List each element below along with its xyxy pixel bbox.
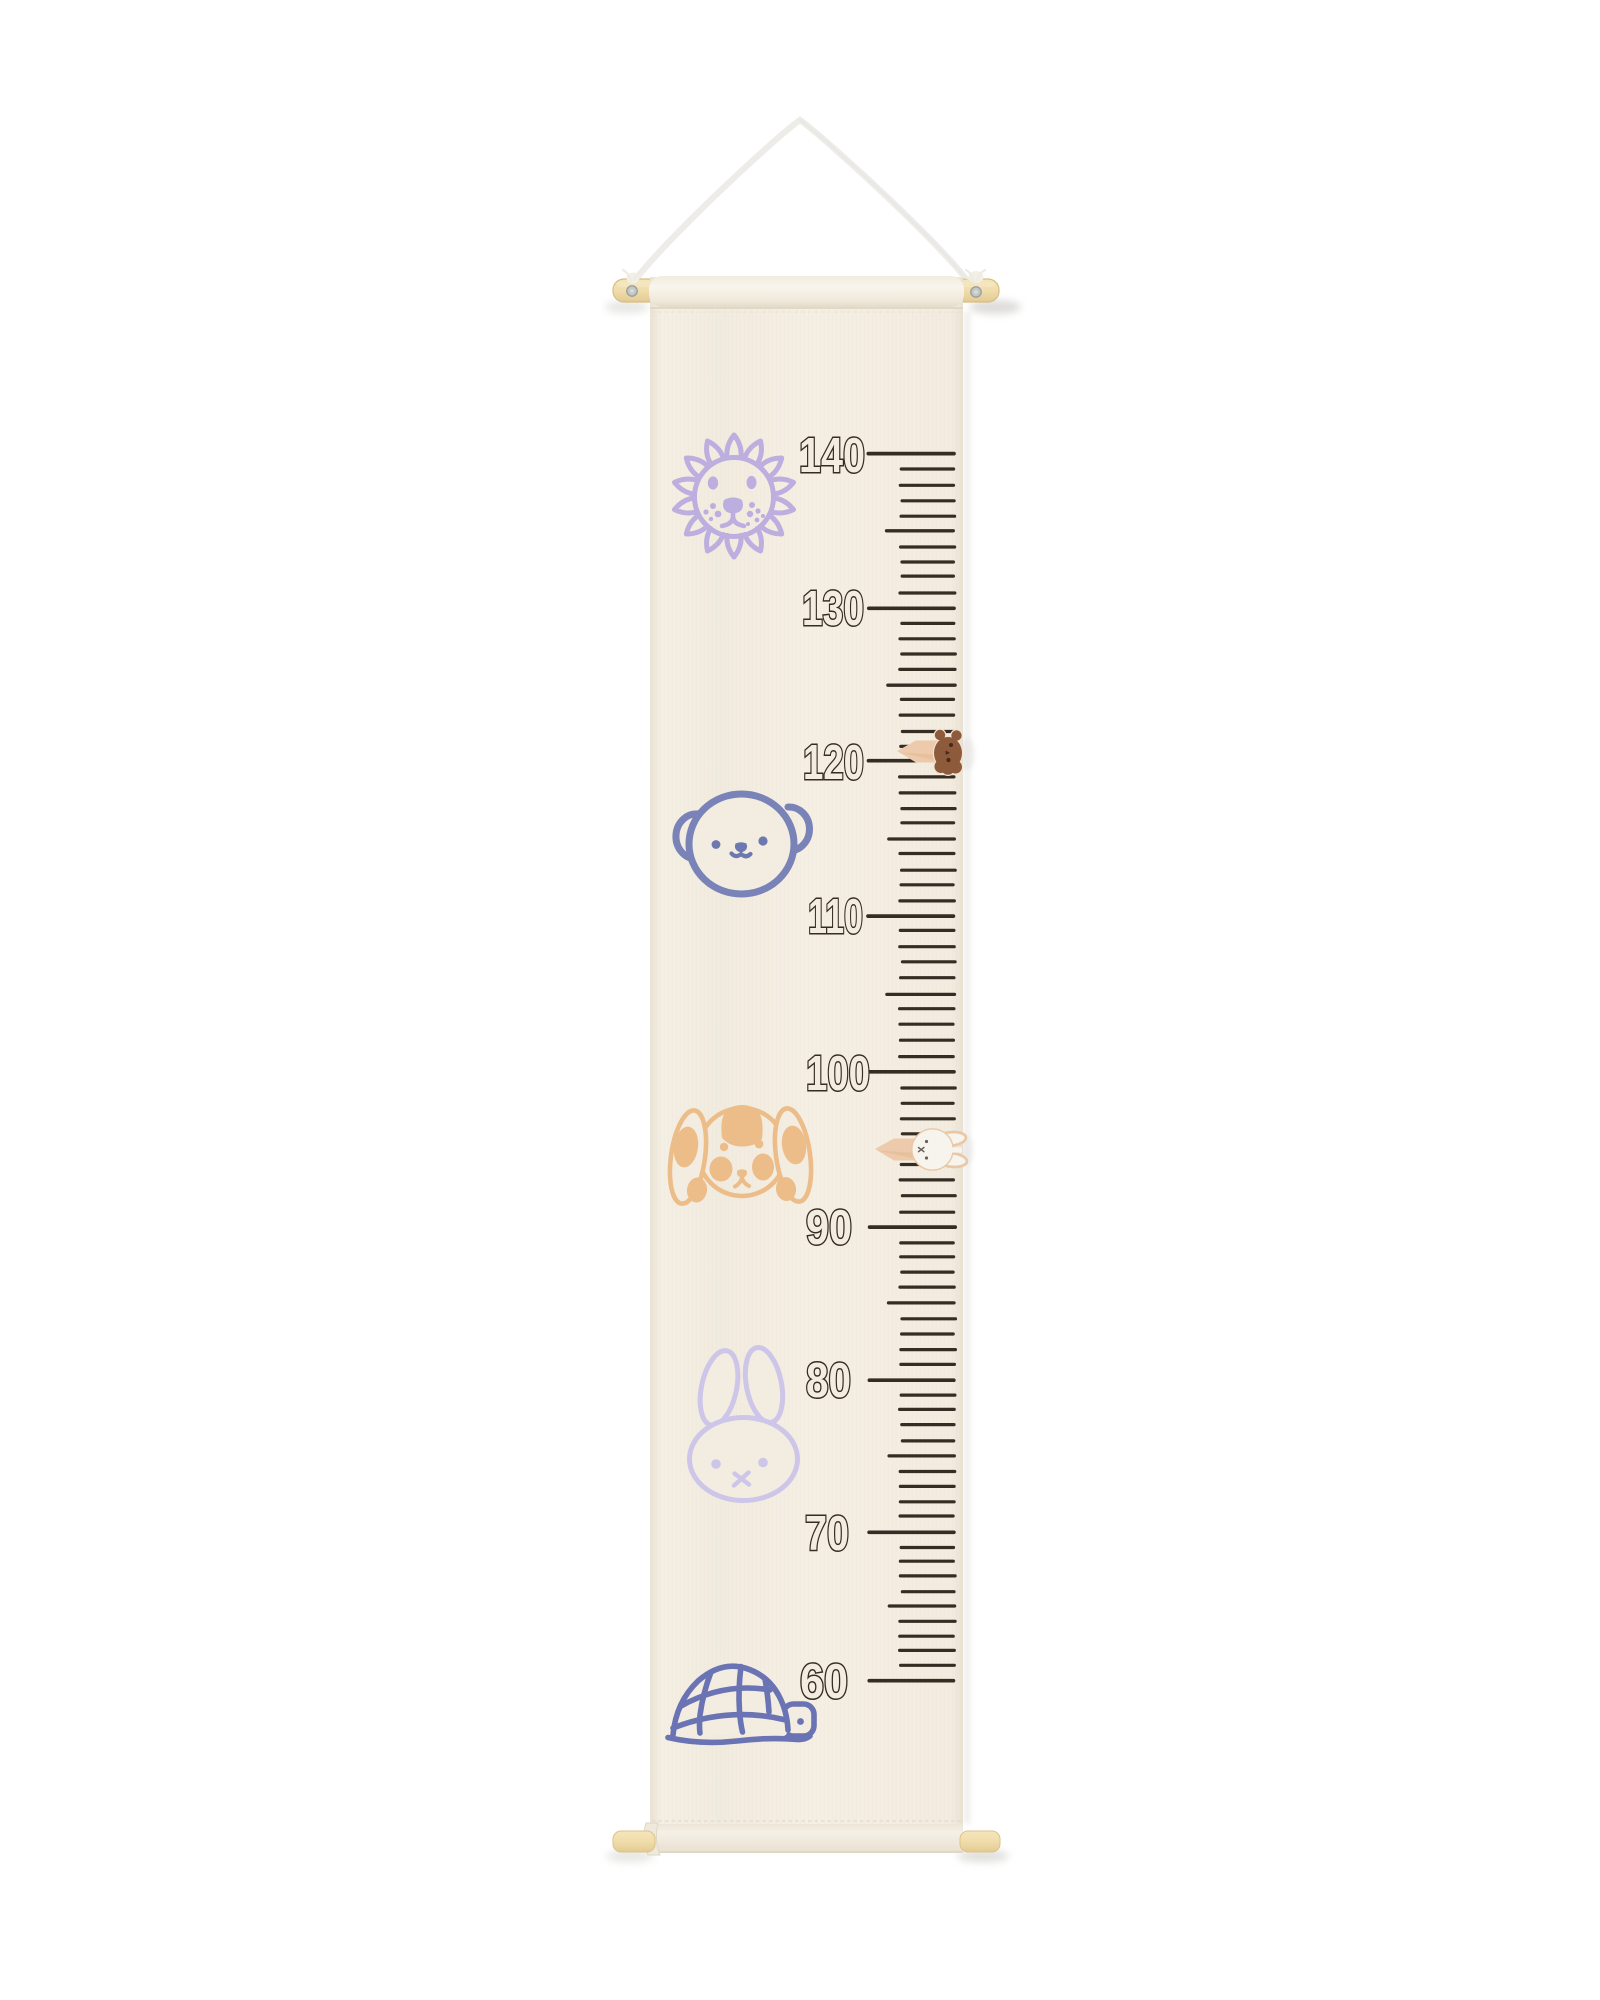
svg-text:80: 80 [806,1354,851,1408]
svg-text:130: 130 [802,582,864,636]
svg-text:140: 140 [799,429,865,483]
svg-text:120: 120 [803,736,864,790]
svg-text:100: 100 [806,1047,870,1101]
svg-text:60: 60 [800,1655,848,1709]
svg-text:110: 110 [808,890,863,944]
svg-text:90: 90 [806,1201,852,1255]
svg-text:70: 70 [805,1507,849,1561]
